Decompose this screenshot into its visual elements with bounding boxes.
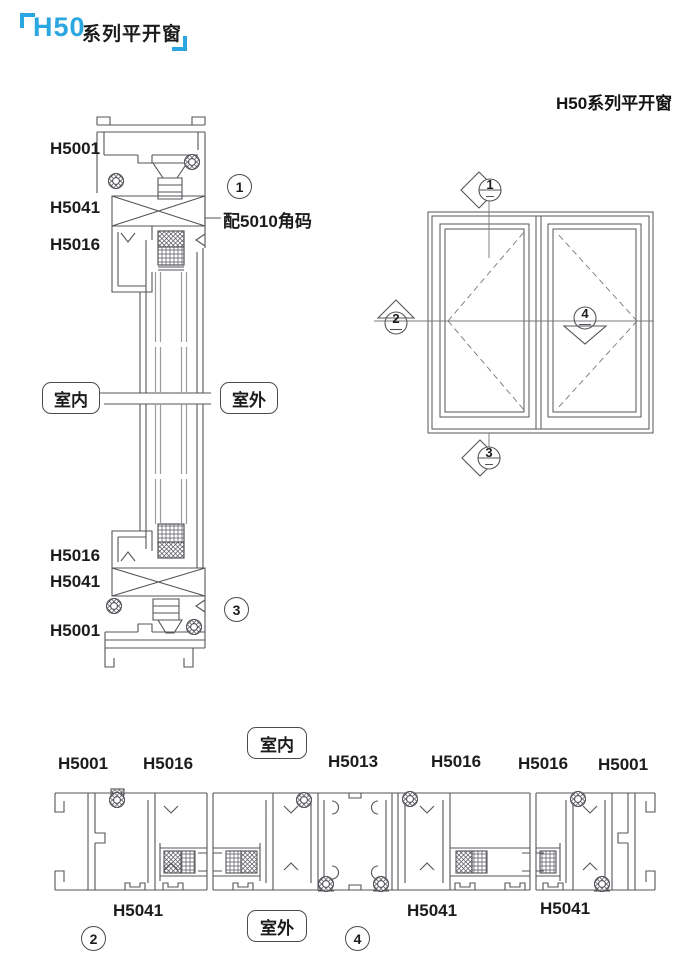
vertical-section-linework <box>95 117 221 667</box>
detail-marker-3: 3 <box>224 597 249 622</box>
hsec-label-right-frame: H5001 <box>598 755 648 775</box>
drawing-sheet: H50 系列平开窗 H50系列平开窗 H5001 H5041 H5016 H50… <box>0 0 700 965</box>
elevation-centerlines <box>374 201 654 447</box>
page-title-brand: H50 <box>33 12 86 43</box>
profile-label-top-sash: H5016 <box>50 235 100 255</box>
profile-label-bottom-sash: H5016 <box>50 546 100 566</box>
outdoor-label-vertical: 室外 <box>220 382 278 414</box>
detail-marker-1: 1 <box>227 174 252 199</box>
detail-marker-2: 2 <box>81 926 106 951</box>
corner-connector-note: 配5010角码 <box>223 207 312 232</box>
profile-label-sill-frame: H5001 <box>50 621 100 641</box>
outdoor-label-horizontal: 室外 <box>247 910 307 942</box>
hsec-bead-label-left: H5041 <box>113 901 163 921</box>
section-marker-4-number: 4 <box>576 307 594 320</box>
section-marker-2-number: 2 <box>387 312 405 325</box>
hsec-label-left-frame: H5001 <box>58 754 108 774</box>
hsec-label-mullion: H5013 <box>328 752 378 772</box>
hsec-bead-label-mid: H5041 <box>407 901 457 921</box>
elevation-linework <box>428 212 653 433</box>
detail-marker-4: 4 <box>345 926 370 951</box>
section-marker-3-number: 3 <box>480 446 498 459</box>
hsec-label-left-sash: H5016 <box>143 754 193 774</box>
section-marker-symbols <box>378 172 606 476</box>
vertical-glass-lines <box>156 272 187 524</box>
profile-label-head-frame: H5001 <box>50 139 100 159</box>
horizontal-section-linework <box>55 789 655 892</box>
title-corner-bracket-bottom-right-icon <box>172 36 187 51</box>
section-marker-1-number: 1 <box>481 178 499 191</box>
hsec-label-right-sash: H5016 <box>518 754 568 774</box>
indoor-label-vertical: 室内 <box>42 382 100 414</box>
profile-label-top-bead: H5041 <box>50 198 100 218</box>
profile-label-bottom-bead: H5041 <box>50 572 100 592</box>
elevation-heading: H50系列平开窗 <box>556 89 672 114</box>
page-title-series: 系列平开窗 <box>82 19 182 46</box>
technical-drawing-svg <box>0 0 700 965</box>
indoor-label-horizontal: 室内 <box>247 727 307 759</box>
hsec-bead-label-right: H5041 <box>540 899 590 919</box>
hsec-label-mid-sash: H5016 <box>431 752 481 772</box>
